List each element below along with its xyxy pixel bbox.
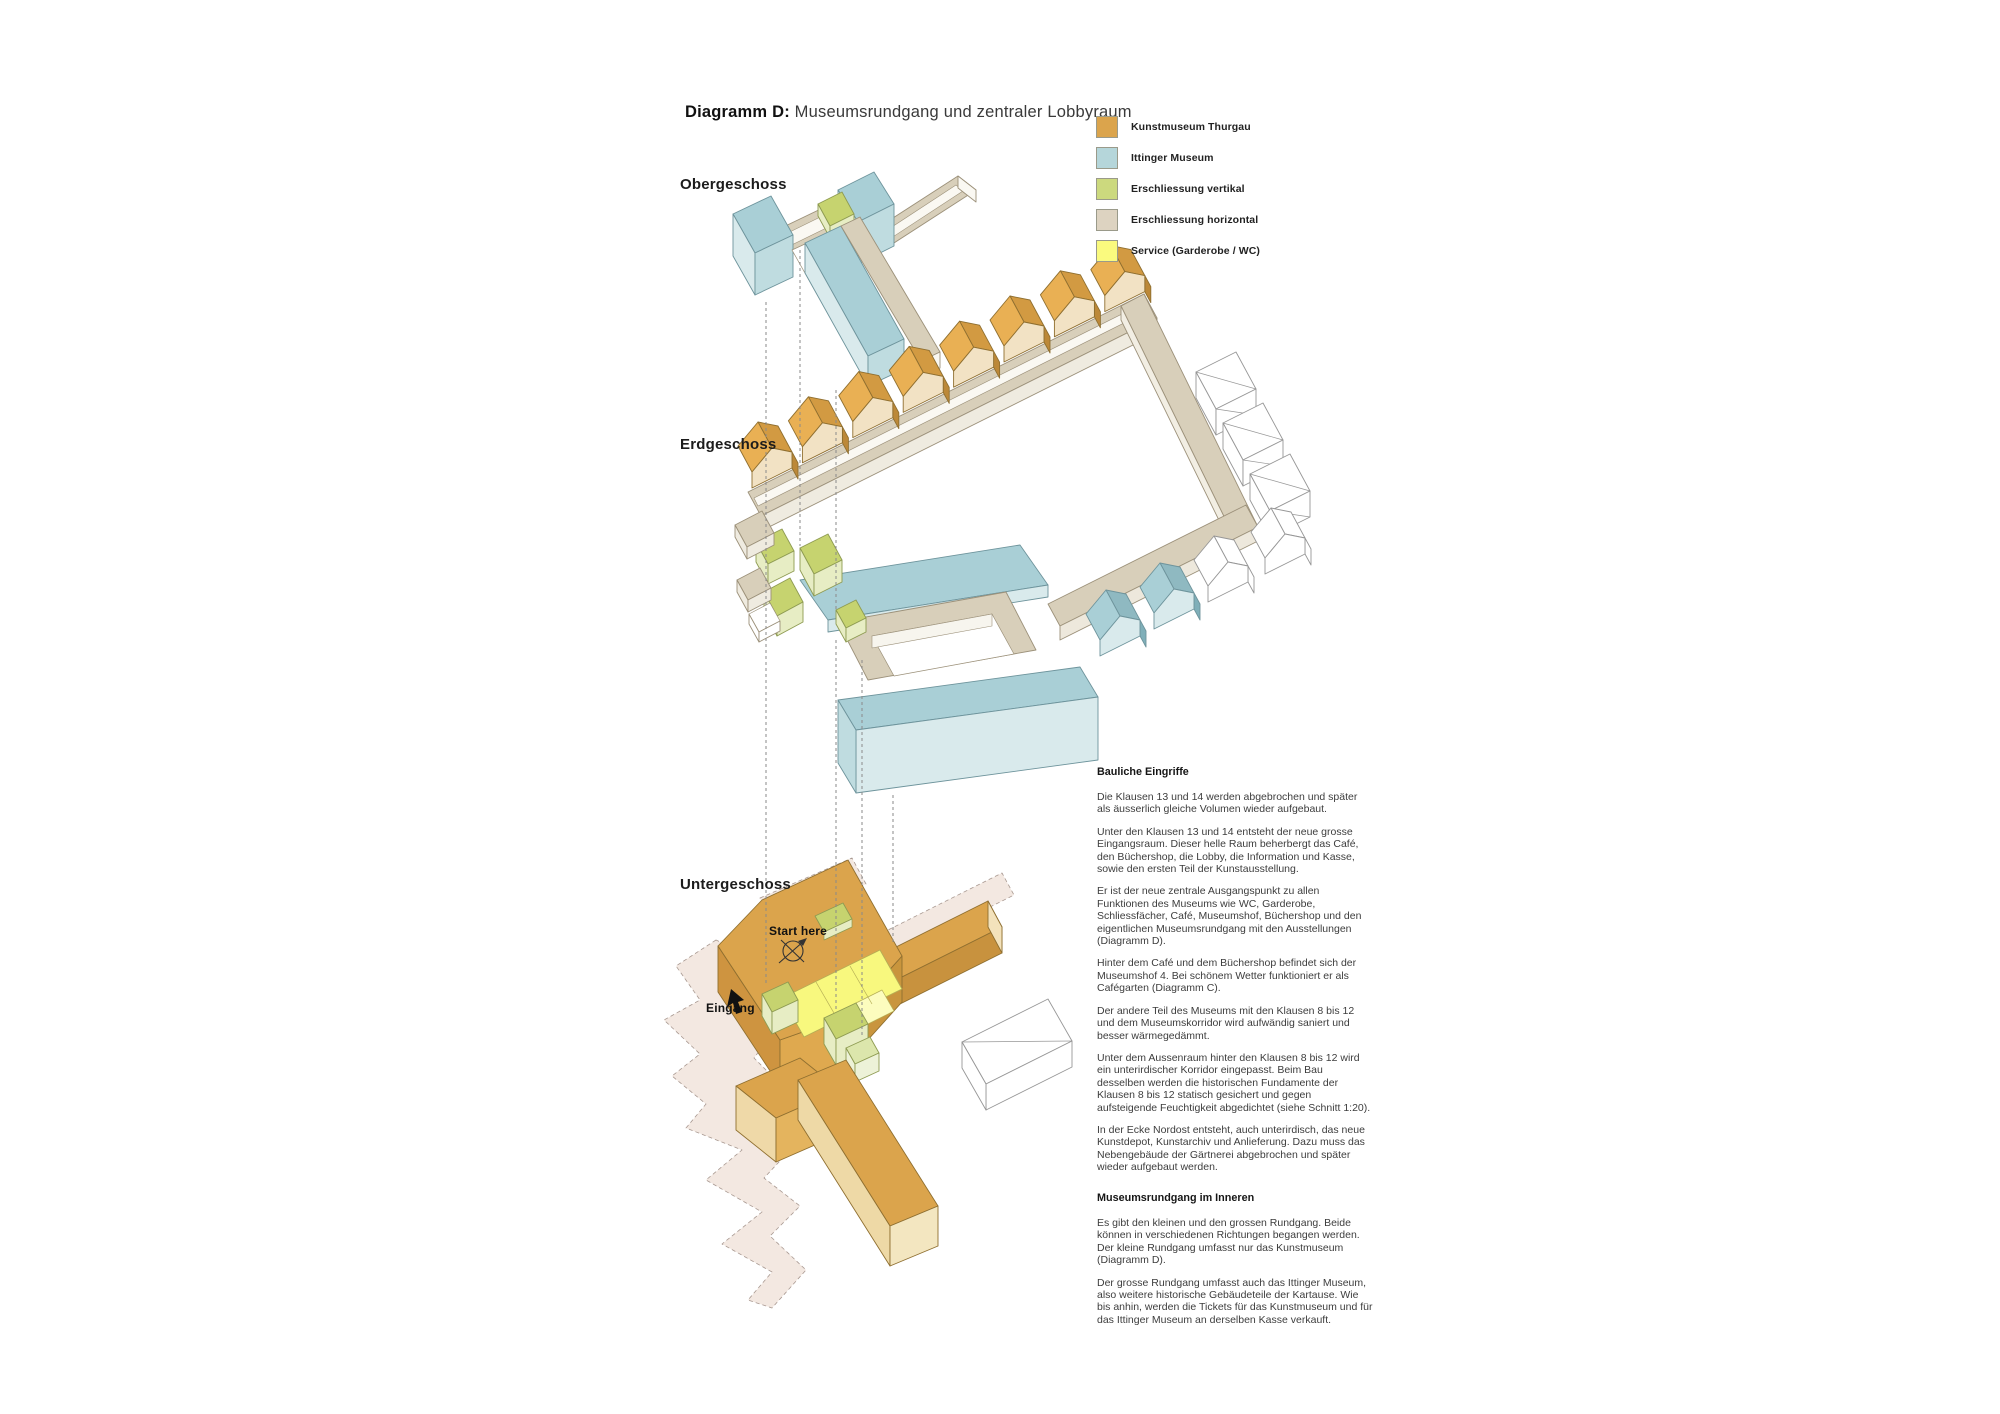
legend-label: Ittinger Museum [1131,152,1214,164]
legend-swatch-ittinger-museum [1096,147,1118,169]
paragraph: Hinter dem Café und dem Büchershop befin… [1097,957,1373,994]
floor-label-obergeschoss: Obergeschoss [680,176,787,193]
paragraph: Der grosse Rundgang umfasst auch das Itt… [1097,1277,1373,1327]
paragraph: Unter dem Aussenraum hinter den Klausen … [1097,1052,1373,1114]
legend-label: Kunstmuseum Thurgau [1131,121,1251,133]
eingang-label: Eingang [706,1001,755,1015]
legend: Kunstmuseum Thurgau Ittinger Museum Ersc… [1096,116,1260,271]
legend-swatch-erschliessung-vertikal [1096,178,1118,200]
paragraph: In der Ecke Nordost entsteht, auch unter… [1097,1124,1373,1174]
legend-swatch-service [1096,240,1118,262]
title-text: Museumsrundgang und zentraler Lobbyraum [790,103,1132,121]
legend-item-service: Service (Garderobe / WC) [1096,240,1260,262]
section-museumsrundgang-im-inneren: Museumsrundgang im Inneren Es gibt den k… [1097,1192,1373,1336]
section-heading: Bauliche Eingriffe [1097,766,1373,778]
legend-swatch-erschliessung-horizontal [1096,209,1118,231]
floor-label-untergeschoss: Untergeschoss [680,876,791,893]
paragraph: Es gibt den kleinen und den grossen Rund… [1097,1217,1373,1267]
legend-label: Erschliessung vertikal [1131,183,1245,195]
floor-label-erdgeschoss: Erdgeschoss [680,436,776,453]
legend-label: Service (Garderobe / WC) [1131,245,1260,257]
legend-item-ittinger-museum: Ittinger Museum [1096,147,1260,169]
legend-item-erschliessung-vertikal: Erschliessung vertikal [1096,178,1260,200]
page: Diagramm D: Museumsrundgang und zentrale… [0,0,2000,1414]
legend-item-kunstmuseum: Kunstmuseum Thurgau [1096,116,1260,138]
paragraph: Der andere Teil des Museums mit den Klau… [1097,1005,1373,1042]
paragraph: Die Klausen 13 und 14 werden abgebrochen… [1097,791,1373,816]
legend-item-erschliessung-horizontal: Erschliessung horizontal [1096,209,1260,231]
paragraph: Er ist der neue zentrale Ausgangspunkt z… [1097,885,1373,947]
title-prefix: Diagramm D: [685,103,790,121]
section-heading: Museumsrundgang im Inneren [1097,1192,1373,1204]
axonometric-diagrams [0,0,2000,1414]
section-bauliche-eingriffe: Bauliche Eingriffe Die Klausen 13 und 14… [1097,766,1373,1184]
paragraph: Unter den Klausen 13 und 14 entsteht der… [1097,826,1373,876]
legend-swatch-kunstmuseum [1096,116,1118,138]
legend-label: Erschliessung horizontal [1131,214,1258,226]
start-here-label: Start here [769,924,827,938]
page-title: Diagramm D: Museumsrundgang und zentrale… [685,103,1132,122]
